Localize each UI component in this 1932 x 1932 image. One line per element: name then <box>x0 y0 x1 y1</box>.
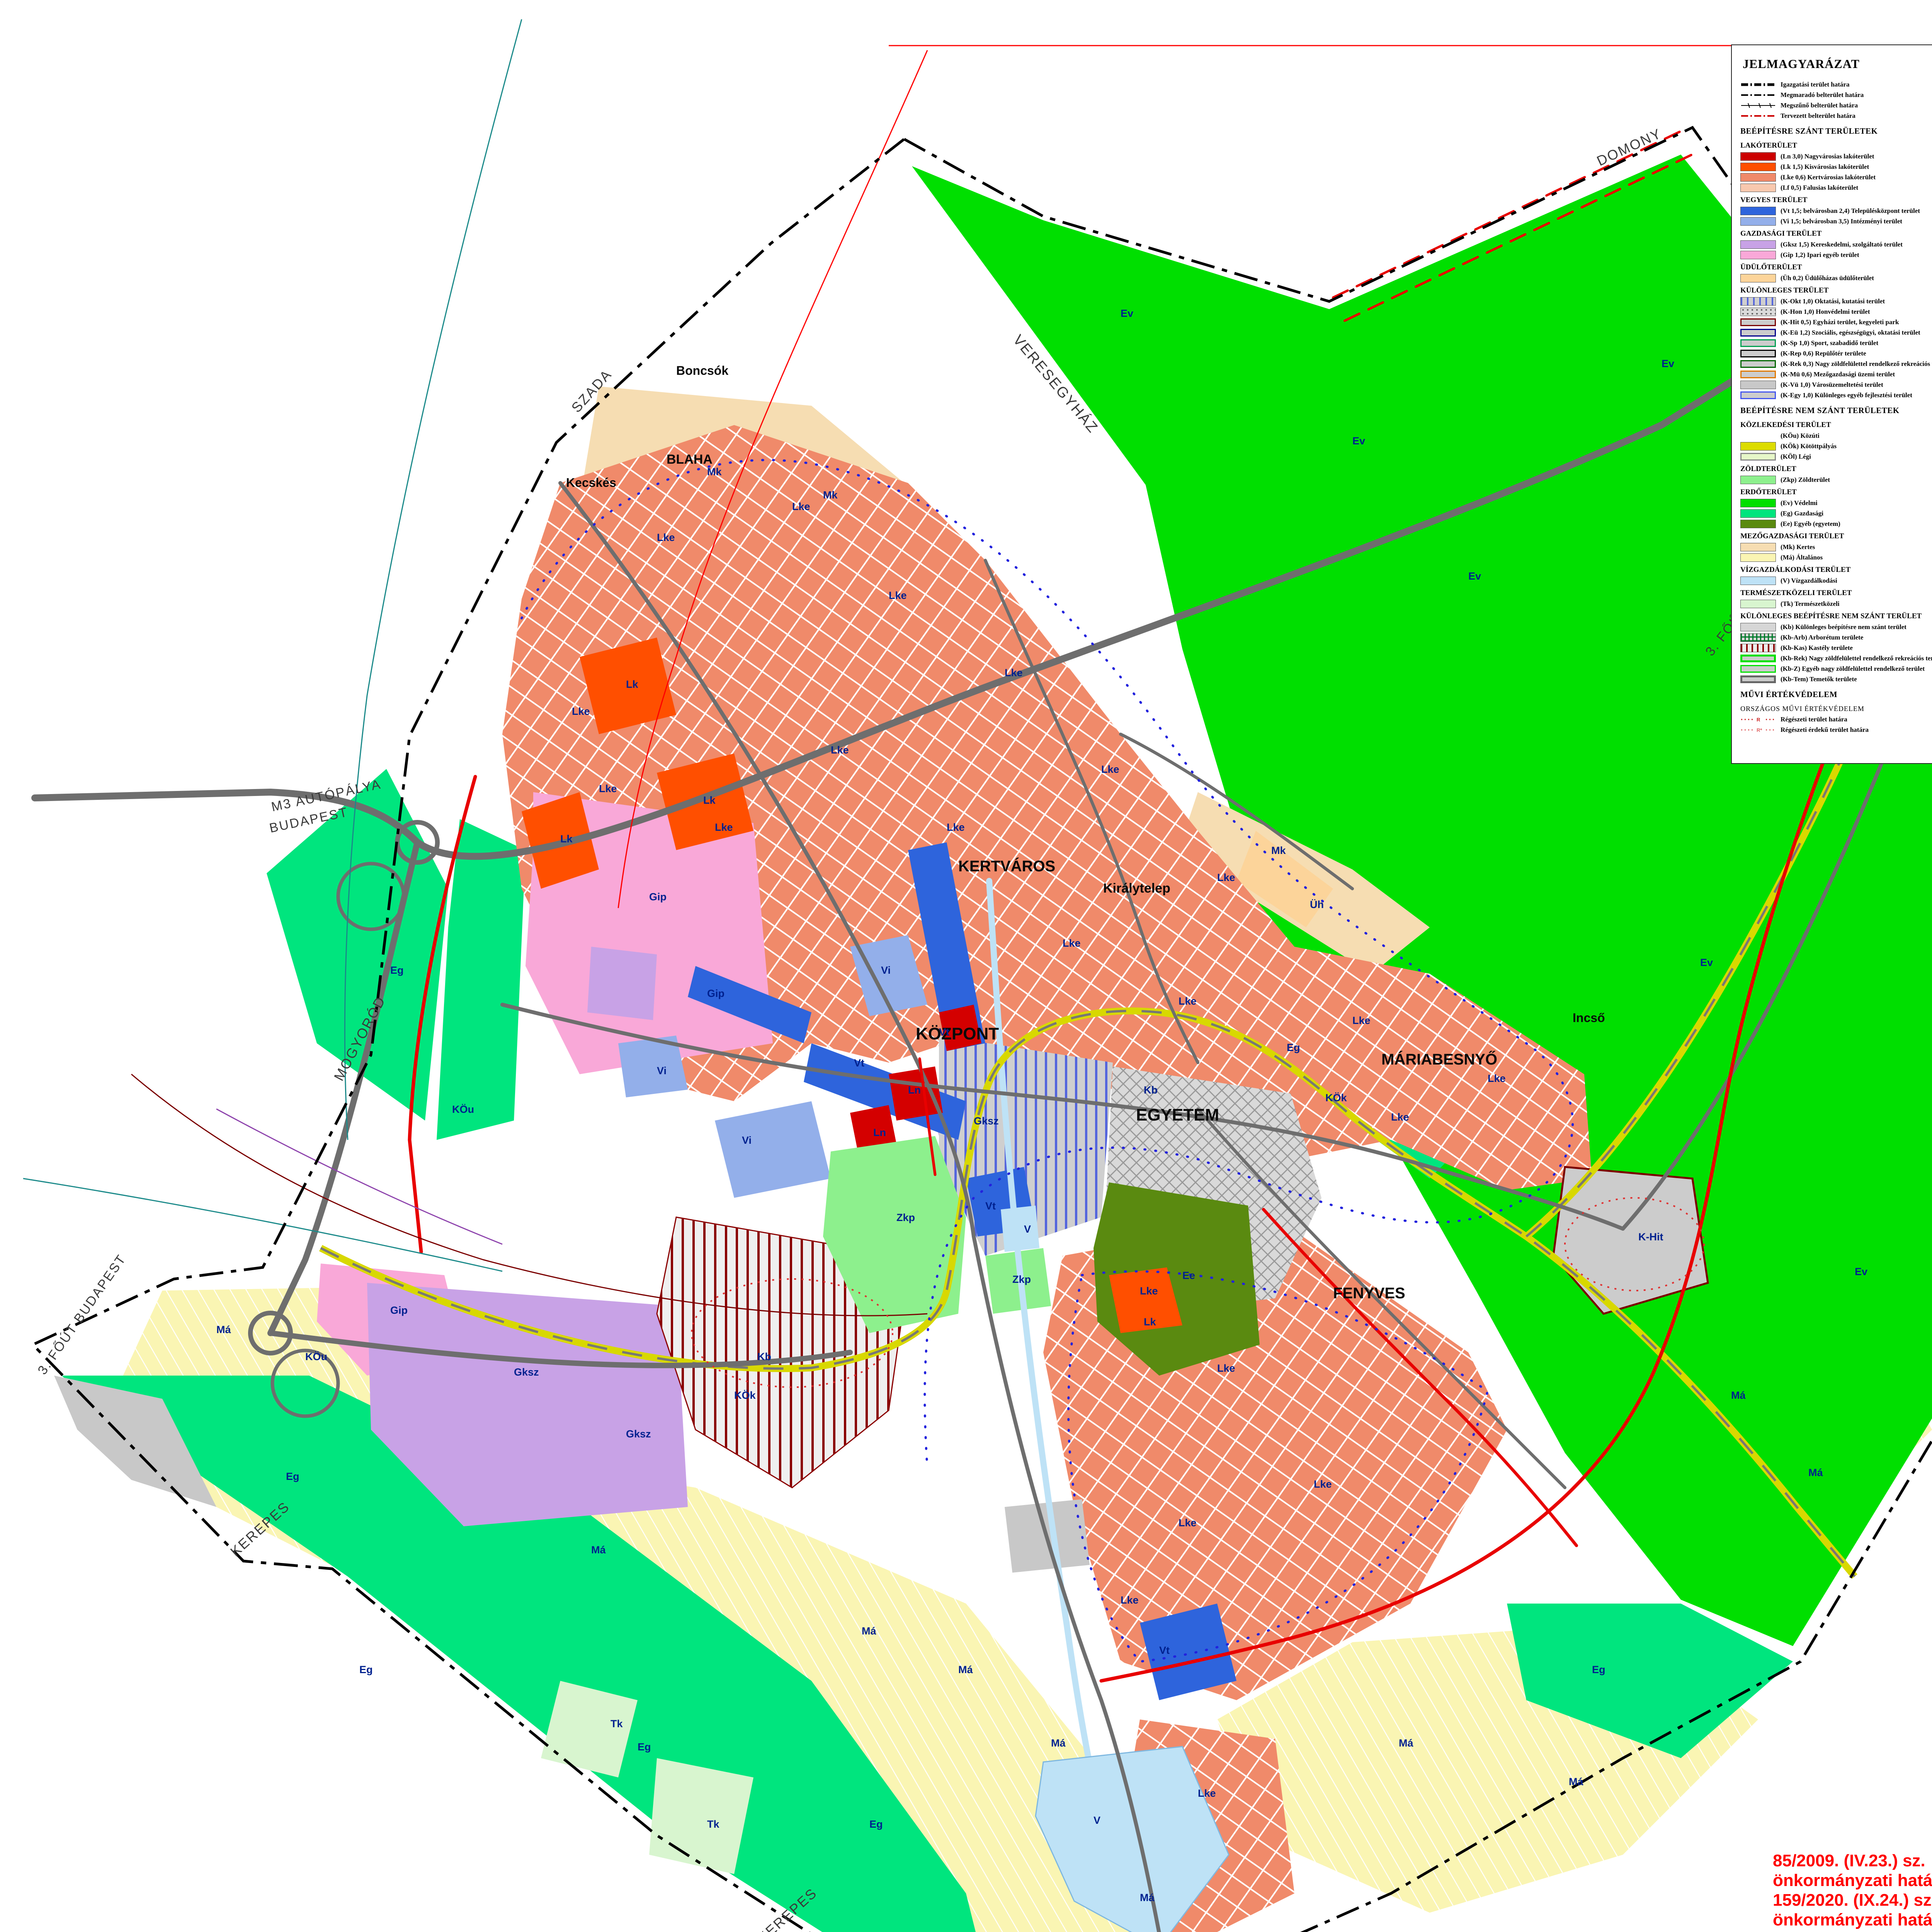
legend-item: (Kb-Rek) Nagy zöldfelülettel rendelkező … <box>1740 653 1932 663</box>
zone-code-label: Kb <box>1144 1084 1158 1096</box>
legend-item-label: (Lke 0,6) Kertvárosias lakóterület <box>1781 173 1876 181</box>
zone-code-label: Lke <box>1140 1285 1158 1297</box>
legend-swatch <box>1740 298 1776 305</box>
legend-item: Igazgatási terület határa <box>1740 79 1932 90</box>
zone-code-label: Gksz <box>514 1366 539 1378</box>
legend-item: (K-Rep 0,6) Repülőtér területe <box>1740 348 1932 359</box>
zone-code-label: Má <box>591 1544 606 1556</box>
legend-left-column: Igazgatási terület határaMegmaradó belte… <box>1740 79 1932 735</box>
approval-note: 85/2009. (IV.23.) sz. önkormányzati hatá… <box>1773 1851 1932 1930</box>
zone-code-label: Vt <box>854 1057 864 1069</box>
legend-swatch <box>1740 153 1776 160</box>
legend-swatch <box>1740 91 1776 99</box>
zone-code-label: Mk <box>823 489 838 501</box>
legend-item: (Gip 1,2) Ipari egyéb terület <box>1740 250 1932 260</box>
legend-item: (K-Sp 1,0) Sport, szabadidő terület <box>1740 338 1932 348</box>
legend-swatch <box>1740 218 1776 225</box>
zone-code-label: Gksz <box>974 1115 999 1127</box>
zone-code-label: Mk <box>1271 845 1286 856</box>
zone-code-label: Má <box>1731 1389 1746 1401</box>
zone-code-label: Üh <box>1310 899 1324 910</box>
legend-item: (KÖl) Légi <box>1740 451 1932 462</box>
legend-item-label: (Ln 3,0) Nagyvárosias lakóterület <box>1781 153 1874 160</box>
zone-code-label: KÖk <box>734 1389 756 1401</box>
legend-swatch <box>1740 476 1776 484</box>
zone-code-label: V <box>1094 1815 1100 1826</box>
legend-section-header: MŰVI ÉRTÉKVÉDELEM <box>1740 690 1932 699</box>
legend-item: (K-Rek 0,3) Nagy zöldfelülettel rendelke… <box>1740 359 1932 369</box>
zone-code-label: Ev <box>1352 435 1365 447</box>
legend-swatch <box>1740 207 1776 215</box>
legend-swatch <box>1740 81 1776 88</box>
legend-item-label: (Kb-Arb) Arborétum területe <box>1781 634 1863 641</box>
legend-section-header: VÍZGAZDÁLKODÁSI TERÜLET <box>1740 566 1932 574</box>
legend-swatch <box>1740 350 1776 357</box>
legend-swatch <box>1740 644 1776 652</box>
zone-code-label: Lke <box>1391 1111 1409 1123</box>
legend-item: (Ev) Védelmi <box>1740 498 1932 508</box>
legend-swatch <box>1740 241 1776 248</box>
zone-code-label: Lke <box>947 821 965 833</box>
zone-code-label: Gip <box>390 1304 408 1316</box>
legend-swatch <box>1740 391 1776 399</box>
district-label: Boncsók <box>676 364 728 378</box>
legend-item: RRégészeti terület határa <box>1740 714 1932 724</box>
zone-code-label: V <box>1024 1223 1031 1235</box>
zone-code-label: Ev <box>1855 1266 1867 1277</box>
legend-item-label: (Zkp) Zöldterület <box>1781 476 1830 484</box>
legend-item-label: (KÖl) Légi <box>1781 453 1811 461</box>
district-label: MÁRIABESNYŐ <box>1381 1050 1497 1068</box>
district-label: Királytelep <box>1103 881 1170 896</box>
legend-section-header: ERDŐTERÜLET <box>1740 488 1932 497</box>
legend-item-label: (K-Hon 1,0) Honvédelmi terület <box>1781 308 1870 316</box>
legend-item: (Lf 0,5) Falusias lakóterület <box>1740 182 1932 193</box>
legend-item: (Vi 1,5; belvárosban 3,5) Intézményi ter… <box>1740 216 1932 226</box>
zone-code-label: Lke <box>1121 1594 1139 1606</box>
zone-code-label: KÖu <box>305 1351 327 1362</box>
district-label: FENYVES <box>1333 1285 1405 1302</box>
legend-swatch <box>1740 675 1776 683</box>
zone-code-label: Tk <box>611 1718 623 1730</box>
legend-item-label: Igazgatási terület határa <box>1781 81 1849 88</box>
legend-section-header: ZÖLDTERÜLET <box>1740 465 1932 473</box>
approval-line: 85/2009. (IV.23.) sz. <box>1773 1851 1932 1871</box>
legend-item-label: (Mk) Kertes <box>1781 543 1815 551</box>
legend-section-header: TERMÉSZETKÖZELI TERÜLET <box>1740 589 1932 597</box>
legend-section-header: KÜLÖNLEGES BEÉPÍTÉSRE NEM SZÁNT TERÜLET <box>1740 612 1932 621</box>
zone-code-label: Lke <box>599 783 617 794</box>
svg-text:R: R <box>1757 717 1760 723</box>
legend-item: R*Régészeti érdekű terület határa <box>1740 724 1932 735</box>
zone-code-label: Ev <box>1700 957 1713 968</box>
zone-code-label: Vt <box>1159 1645 1170 1656</box>
legend-item: (Vt 1,5; belvárosban 2,4) Településközpo… <box>1740 206 1932 216</box>
legend-item: Megmaradó belterület határa <box>1740 90 1932 100</box>
legend-item-label: (Vi 1,5; belvárosban 3,5) Intézményi ter… <box>1781 218 1902 225</box>
zone-code-label: Eg <box>390 964 404 976</box>
legend-section-header: LAKÓTERÜLET <box>1740 141 1932 150</box>
zone-code-label: Vi <box>742 1134 752 1146</box>
legend-section-header: BEÉPÍTÉSRE NEM SZÁNT TERÜLETEK <box>1740 406 1932 415</box>
district-label: Incső <box>1573 1011 1605 1025</box>
legend-swatch: R* <box>1740 726 1776 734</box>
zone-code-label: Gksz <box>626 1428 651 1440</box>
legend-swatch <box>1740 308 1776 316</box>
legend-swatch <box>1740 112 1776 120</box>
legend-section-header: ÜDÜLŐTERÜLET <box>1740 263 1932 272</box>
legend-item: (K-Hon 1,0) Honvédelmi terület <box>1740 306 1932 317</box>
zone-code-label: Zkp <box>896 1212 915 1223</box>
legend-item-label: (Kb) Különleges beépítésre nem szánt ter… <box>1781 623 1906 631</box>
legend-item-label: (K-Sp 1,0) Sport, szabadidő terület <box>1781 339 1878 347</box>
approval-line: önkormányzati határozattal módosítva. <box>1773 1910 1932 1930</box>
legend-swatch <box>1740 360 1776 368</box>
legend-swatch <box>1740 102 1776 109</box>
zone-code-label: Lke <box>1063 937 1081 949</box>
legend-item: (Lk 1,5) Kisvárosias lakóterület <box>1740 162 1932 172</box>
zone-code-label: Lke <box>1101 764 1119 775</box>
zone-code-label: Eg <box>286 1471 299 1482</box>
legend-item: Megszűnő belterület határa <box>1740 100 1932 111</box>
zone-code-label: Lke <box>1488 1073 1506 1084</box>
legend-panel: JELMAGYARÁZAT Igazgatási terület határaM… <box>1731 44 1932 764</box>
legend-item: (Mk) Kertes <box>1740 542 1932 552</box>
zone-code-label: Mk <box>707 466 722 478</box>
zone-code-label: Kb <box>757 1351 771 1362</box>
zone-code-label: Ln <box>908 1084 921 1096</box>
legend-item: (V) Vízgazdálkodási <box>1740 575 1932 586</box>
legend-item: (KÖu) Közúti <box>1740 430 1932 441</box>
legend-swatch <box>1740 173 1776 181</box>
legend-item: (K-Eü 1,2) Szociális, egészségügyi, okta… <box>1740 327 1932 338</box>
legend-item-label: (K-Vü 1,0) Városüzemeltetési terület <box>1781 381 1883 389</box>
legend-swatch <box>1740 251 1776 259</box>
legend-item: (KÖk) Kötöttpályás <box>1740 441 1932 451</box>
legend-item-label: (Kb-Z) Egyéb nagy zöldfelülettel rendelk… <box>1781 665 1925 673</box>
legend-swatch <box>1740 318 1776 326</box>
legend-section-header: MEZŐGAZDASÁGI TERÜLET <box>1740 532 1932 541</box>
zone-code-label: Má <box>862 1625 876 1637</box>
legend-section-header: GAZDASÁGI TERÜLET <box>1740 230 1932 238</box>
zone-code-label: Eg <box>1287 1042 1300 1053</box>
legend-item-label: (K-Mü 0,6) Mezőgazdasági üzemi terület <box>1781 371 1895 378</box>
legend-item-label: (Kb-Rek) Nagy zöldfelülettel rendelkező … <box>1781 655 1932 662</box>
legend-item-label: (K-Egy 1,0) Különleges egyéb fejlesztési… <box>1781 391 1912 399</box>
zone-code-label: Má <box>1051 1737 1066 1749</box>
legend-item: (Kb) Különleges beépítésre nem szánt ter… <box>1740 622 1932 632</box>
legend-item-label: (K-Hit 0,5) Egyházi terület, kegyeleti p… <box>1781 318 1899 326</box>
legend-item-label: (Tk) Természetközeli <box>1781 600 1840 608</box>
zone-code-label: Lk <box>703 794 716 806</box>
legend-item-label: (Gksz 1,5) Kereskedelmi, szolgáltató ter… <box>1781 241 1903 248</box>
legend-item-label: (Gip 1,2) Ipari egyéb terület <box>1781 251 1859 259</box>
legend-swatch <box>1740 371 1776 378</box>
legend-item-label: (KÖu) Közúti <box>1781 432 1820 440</box>
legend-swatch <box>1740 554 1776 561</box>
legend-title: JELMAGYARÁZAT <box>1743 57 1860 71</box>
legend-item: (K-Vü 1,0) Városüzemeltetési terület <box>1740 379 1932 390</box>
legend-item-label: (Vt 1,5; belvárosban 2,4) Településközpo… <box>1781 207 1920 215</box>
legend-swatch <box>1740 577 1776 585</box>
legend-item-label: Megszűnő belterület határa <box>1781 102 1858 109</box>
legend-swatch <box>1740 600 1776 608</box>
zone-code-label: Lk <box>560 833 573 845</box>
legend-item: Tervezett belterület határa <box>1740 111 1932 121</box>
zone-code-label: Lk <box>626 679 638 690</box>
legend-section-header: ORSZÁGOS MŰVI ÉRTÉKVÉDELEM <box>1740 705 1932 713</box>
zone-code-label: KÖk <box>1325 1092 1347 1104</box>
legend-item: (Eg) Gazdasági <box>1740 508 1932 519</box>
legend-swatch <box>1740 163 1776 171</box>
zone-code-label: Lke <box>1179 995 1197 1007</box>
zone-code-label: Má <box>1569 1776 1583 1787</box>
legend-swatch <box>1740 453 1776 461</box>
zone-code-label: Vt <box>985 1200 996 1212</box>
zone-code-label: KÖu <box>452 1104 474 1115</box>
zone-code-label: Má <box>1140 1892 1155 1903</box>
zone-code-label: Má <box>958 1664 973 1675</box>
legend-item-label: Megmaradó belterület határa <box>1781 91 1864 99</box>
plan-sheet: VERESEGYHÁZSZADADOMONYMOGYORÓD3. FŐÚT BU… <box>0 0 1932 1932</box>
map-canvas: VERESEGYHÁZSZADADOMONYMOGYORÓD3. FŐÚT BU… <box>0 0 1932 1932</box>
district-label: KÖZPONT <box>916 1024 999 1043</box>
legend-item: (Kb-Arb) Arborétum területe <box>1740 632 1932 643</box>
zone-code-label: Tk <box>707 1818 719 1830</box>
legend-item: (Ln 3,0) Nagyvárosias lakóterület <box>1740 151 1932 162</box>
legend-item-label: (Eg) Gazdasági <box>1781 510 1823 517</box>
legend-swatch <box>1740 499 1776 507</box>
legend-item-label: (Lk 1,5) Kisvárosias lakóterület <box>1781 163 1869 171</box>
legend-item-label: Régészeti terület határa <box>1781 716 1847 723</box>
legend-swatch <box>1740 432 1776 440</box>
legend-item-label: Régészeti érdekű terület határa <box>1781 726 1869 734</box>
legend-item: (Kb-Kas) Kastély területe <box>1740 643 1932 653</box>
zone-code-label: Ev <box>1662 358 1674 369</box>
legend-swatch <box>1740 442 1776 450</box>
legend-swatch <box>1740 381 1776 389</box>
zone-code-label: Vi <box>657 1065 667 1077</box>
legend-item-label: (Kb-Kas) Kastély területe <box>1781 644 1853 652</box>
legend-swatch: R <box>1740 716 1776 723</box>
zone-code-label: Eg <box>359 1664 373 1675</box>
legend-swatch <box>1740 184 1776 192</box>
legend-item: (K-Okt 1,0) Oktatási, kutatási terület <box>1740 296 1932 306</box>
legend-item: (K-Hit 0,5) Egyházi terület, kegyeleti p… <box>1740 317 1932 327</box>
zone-code-label: Ev <box>1468 570 1481 582</box>
district-label: KERTVÁROS <box>958 857 1055 875</box>
legend-item: (Gksz 1,5) Kereskedelmi, szolgáltató ter… <box>1740 239 1932 250</box>
legend-item-label: (V) Vízgazdálkodási <box>1781 577 1837 585</box>
zone-code-label: Vt <box>939 1026 949 1038</box>
zone-code-label: Má <box>1399 1737 1413 1749</box>
zone-code-label: Zkp <box>1012 1274 1031 1285</box>
legend-item: (Ee) Egyéb (egyetem) <box>1740 519 1932 529</box>
legend-swatch <box>1740 274 1776 282</box>
legend-item-label: (Ee) Egyéb (egyetem) <box>1781 520 1840 528</box>
legend-item-label: (K-Eü 1,2) Szociális, egészségügyi, okta… <box>1781 329 1920 337</box>
zone-code-label: Lk <box>1144 1316 1156 1328</box>
legend-section-header: VEGYES TERÜLET <box>1740 196 1932 204</box>
legend-section-header: BEÉPÍTÉSRE SZÁNT TERÜLETEK <box>1740 126 1932 136</box>
legend-swatch <box>1740 329 1776 337</box>
zone-code-label: Vi <box>881 964 891 976</box>
legend-item-label: (Üh 0,2) Üdülőházas üdülőterület <box>1781 274 1874 282</box>
legend-swatch <box>1740 634 1776 641</box>
legend-item-label: Tervezett belterület határa <box>1781 112 1855 120</box>
legend-item-label: (K-Rep 0,6) Repülőtér területe <box>1781 350 1866 357</box>
svg-text:R*: R* <box>1757 727 1762 733</box>
legend-item-label: (Lf 0,5) Falusias lakóterület <box>1781 184 1858 192</box>
zone-code-label: K-Hit <box>1638 1231 1663 1243</box>
legend-item: (Zkp) Zöldterület <box>1740 474 1932 485</box>
zone-code-label: Lke <box>715 821 733 833</box>
zone-code-label: Lke <box>889 590 907 601</box>
zone-code-label: Lke <box>1352 1015 1371 1026</box>
approval-line: önkormányzati határozattal jóváhagyva, <box>1773 1871 1932 1890</box>
zone-code-label: Má <box>216 1324 231 1335</box>
district-label: Kecskés <box>566 476 616 490</box>
legend-swatch <box>1740 339 1776 347</box>
legend-item-label: (Kb-Tem) Temetők területe <box>1781 675 1857 683</box>
zone-code-label: Lke <box>572 706 590 717</box>
zone-code-label: Lke <box>1314 1478 1332 1490</box>
zone-code-label: Ev <box>1121 308 1133 319</box>
legend-item: (Kb-Z) Egyéb nagy zöldfelülettel rendelk… <box>1740 663 1932 674</box>
zone-code-label: Lke <box>1005 667 1023 679</box>
zone-code-label: Eg <box>869 1818 883 1830</box>
zone-code-label: Ln <box>873 1127 886 1138</box>
zone-code-label: Lke <box>1217 872 1235 883</box>
legend-item: (Kb-Tem) Temetők területe <box>1740 674 1932 684</box>
zone-code-label: Ee <box>1182 1270 1195 1281</box>
legend-swatch <box>1740 665 1776 673</box>
legend-item: (Lke 0,6) Kertvárosias lakóterület <box>1740 172 1932 182</box>
legend-swatch <box>1740 543 1776 551</box>
zone-code-label: Lke <box>1198 1787 1216 1799</box>
legend-item-label: (KÖk) Kötöttpályás <box>1781 442 1837 450</box>
legend-item: (K-Mü 0,6) Mezőgazdasági üzemi terület <box>1740 369 1932 379</box>
legend-item-label: (K-Rek 0,3) Nagy zöldfelülettel rendelke… <box>1781 360 1932 368</box>
approval-line: 159/2020. (IX.24.) sz. <box>1773 1890 1932 1910</box>
zone-code-label: Eg <box>638 1741 651 1753</box>
zone-code-label: Eg <box>1592 1664 1605 1675</box>
legend-item: (Tk) Természetközeli <box>1740 599 1932 609</box>
legend-item: (Üh 0,2) Üdülőházas üdülőterület <box>1740 273 1932 283</box>
legend-item-label: (K-Okt 1,0) Oktatási, kutatási terület <box>1781 298 1885 305</box>
legend-section-header: KÜLÖNLEGES TERÜLET <box>1740 286 1932 295</box>
legend-swatch <box>1740 510 1776 517</box>
zone-code-label: Lke <box>831 744 849 756</box>
zone-code-label: Lke <box>1217 1362 1235 1374</box>
legend-item-label: (Má) Általános <box>1781 554 1823 561</box>
zone-code-label: Gip <box>649 891 667 903</box>
zone-code-label: Lke <box>657 532 675 543</box>
zone-code-label: Má <box>1808 1467 1823 1478</box>
zone-code-label: Lke <box>1179 1517 1197 1529</box>
legend-item: (Má) Általános <box>1740 552 1932 563</box>
legend-item-label: (Ev) Védelmi <box>1781 499 1818 507</box>
legend-item: (K-Egy 1,0) Különleges egyéb fejlesztési… <box>1740 390 1932 400</box>
zone-code-label: Gip <box>707 988 724 999</box>
district-label: EGYETEM <box>1136 1105 1219 1124</box>
legend-swatch <box>1740 520 1776 528</box>
legend-swatch <box>1740 623 1776 631</box>
district-label: BLAHA <box>667 452 713 467</box>
legend-section-header: KÖZLEKEDÉSI TERÜLET <box>1740 421 1932 429</box>
legend-swatch <box>1740 655 1776 662</box>
zone-code-label: Lke <box>792 501 810 512</box>
